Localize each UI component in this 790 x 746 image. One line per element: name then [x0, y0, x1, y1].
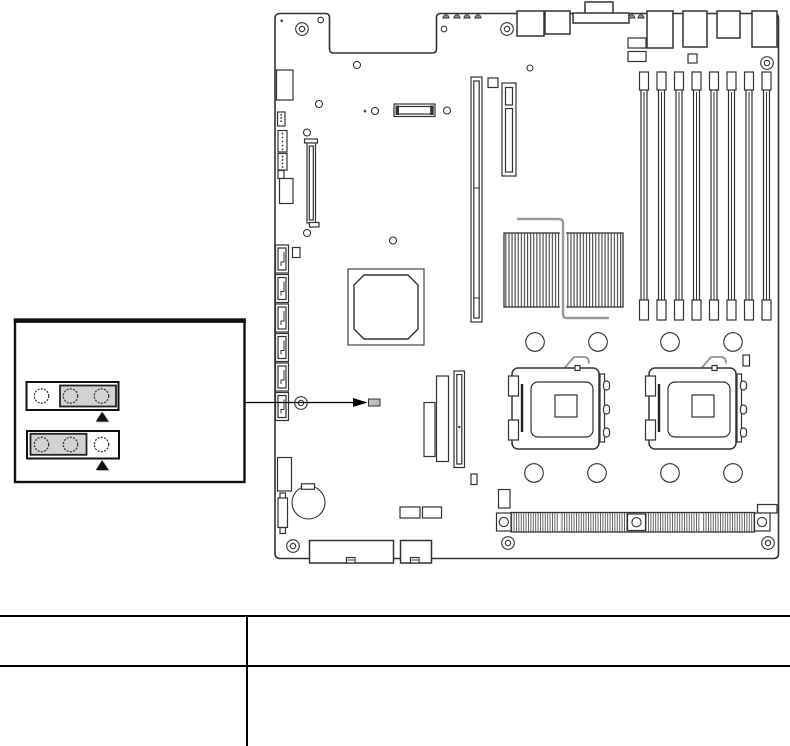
table-row	[0, 667, 790, 746]
page	[0, 0, 790, 746]
table-cell	[0, 667, 248, 746]
riser-slot-key	[506, 88, 513, 106]
dimm-slot	[675, 72, 684, 320]
io-connector	[278, 498, 288, 528]
rear-port	[545, 11, 570, 34]
small-component	[400, 507, 420, 518]
rear-port-base	[573, 13, 629, 23]
small-component	[471, 474, 477, 485]
small-component	[278, 171, 284, 179]
connector	[424, 403, 435, 457]
io-connector	[280, 179, 294, 204]
small-component	[499, 490, 511, 509]
jumper-location-diagram	[0, 0, 790, 610]
dimm-slot	[762, 72, 771, 320]
bottom-edge-connectors	[310, 541, 432, 564]
sata-port	[276, 334, 289, 362]
small-component	[293, 248, 301, 258]
riser-slot-key	[506, 109, 513, 173]
rear-port	[683, 11, 707, 47]
sata-port	[276, 363, 289, 391]
dimm-slot	[745, 72, 754, 320]
dimm-slot	[640, 72, 649, 320]
sata-port	[276, 393, 289, 421]
small-component	[488, 78, 498, 88]
center-connector	[394, 104, 435, 117]
cpu-socket-2	[646, 357, 747, 449]
jumper-callout	[14, 320, 246, 483]
dimm-slot	[692, 72, 701, 320]
small-component	[743, 355, 750, 366]
sata-port	[276, 245, 289, 273]
rear-port	[717, 11, 740, 38]
table-cell	[0, 617, 248, 665]
sata-port	[276, 304, 289, 332]
rear-port	[517, 11, 544, 36]
small-component	[423, 507, 442, 518]
sata-port	[276, 275, 289, 303]
small-component	[628, 38, 646, 48]
table-cell	[248, 617, 790, 665]
rear-port-tab	[585, 2, 613, 14]
io-connector	[278, 458, 292, 492]
chipset	[348, 269, 424, 345]
table-row	[0, 617, 790, 667]
connector	[437, 376, 449, 462]
dimm-slot	[727, 72, 736, 320]
dimm-slot	[710, 72, 719, 320]
rear-port	[647, 11, 673, 48]
small-component	[758, 505, 778, 514]
dimm-slot	[657, 72, 666, 320]
rear-port	[752, 11, 777, 47]
heatsink	[504, 219, 623, 318]
io-connector	[277, 70, 294, 100]
jumper-block-location	[369, 399, 381, 406]
reference-table	[0, 615, 790, 746]
small-component	[628, 52, 646, 62]
small-component	[688, 54, 697, 63]
motherboard-diagram	[275, 2, 779, 563]
table-cell	[248, 667, 790, 746]
riser-slot-key	[474, 81, 479, 318]
cpu-socket-1	[509, 357, 610, 449]
